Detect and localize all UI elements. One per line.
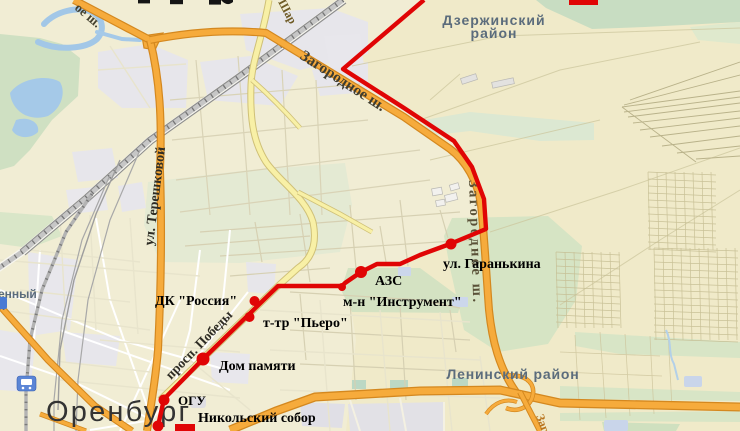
svg-text:Ленинский район: Ленинский район <box>447 366 580 382</box>
svg-text:т-тр "Пьеро": т-тр "Пьеро" <box>263 316 348 331</box>
svg-text:Оренбург: Оренбург <box>46 396 191 428</box>
svg-text:Никольский собор: Никольский собор <box>198 411 316 426</box>
svg-text:район: район <box>471 25 518 41</box>
svg-text:м-н "Инструмент": м-н "Инструмент" <box>343 295 462 310</box>
svg-text:ОГУ: ОГУ <box>178 393 206 408</box>
svg-text:ул. Гаранькина: ул. Гаранькина <box>443 257 541 272</box>
svg-text:ДК "Россия": ДК "Россия" <box>155 294 237 309</box>
svg-text:Дом памяти: Дом памяти <box>219 359 296 374</box>
svg-text:АЗС: АЗС <box>375 274 402 289</box>
